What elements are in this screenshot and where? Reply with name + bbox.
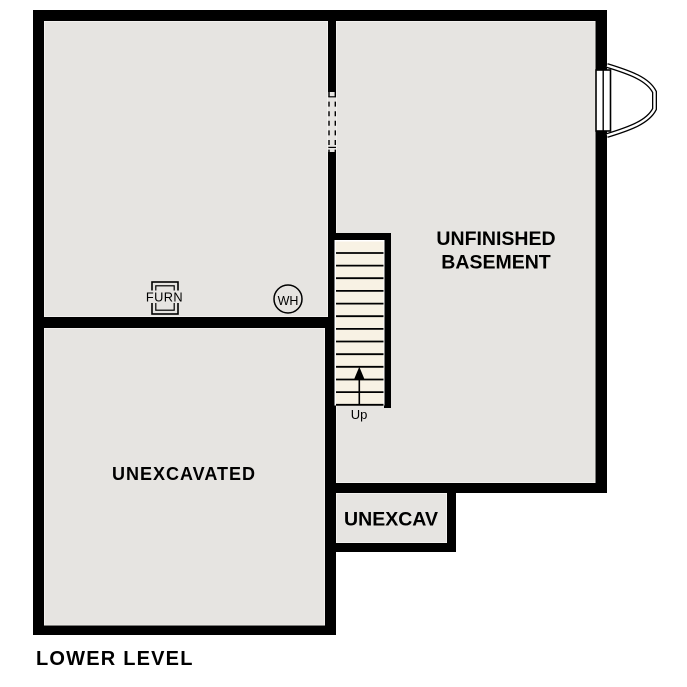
svg-text:UNEXCAV: UNEXCAV (344, 509, 438, 531)
svg-text:Up: Up (351, 407, 368, 422)
svg-text:UNEXCAVATED: UNEXCAVATED (112, 464, 256, 484)
svg-text:BASEMENT: BASEMENT (441, 252, 551, 274)
svg-text:LOWER LEVEL: LOWER LEVEL (36, 648, 194, 670)
svg-text:WH: WH (278, 294, 299, 308)
svg-text:FURN: FURN (146, 290, 183, 305)
svg-text:UNFINISHED: UNFINISHED (436, 228, 555, 250)
